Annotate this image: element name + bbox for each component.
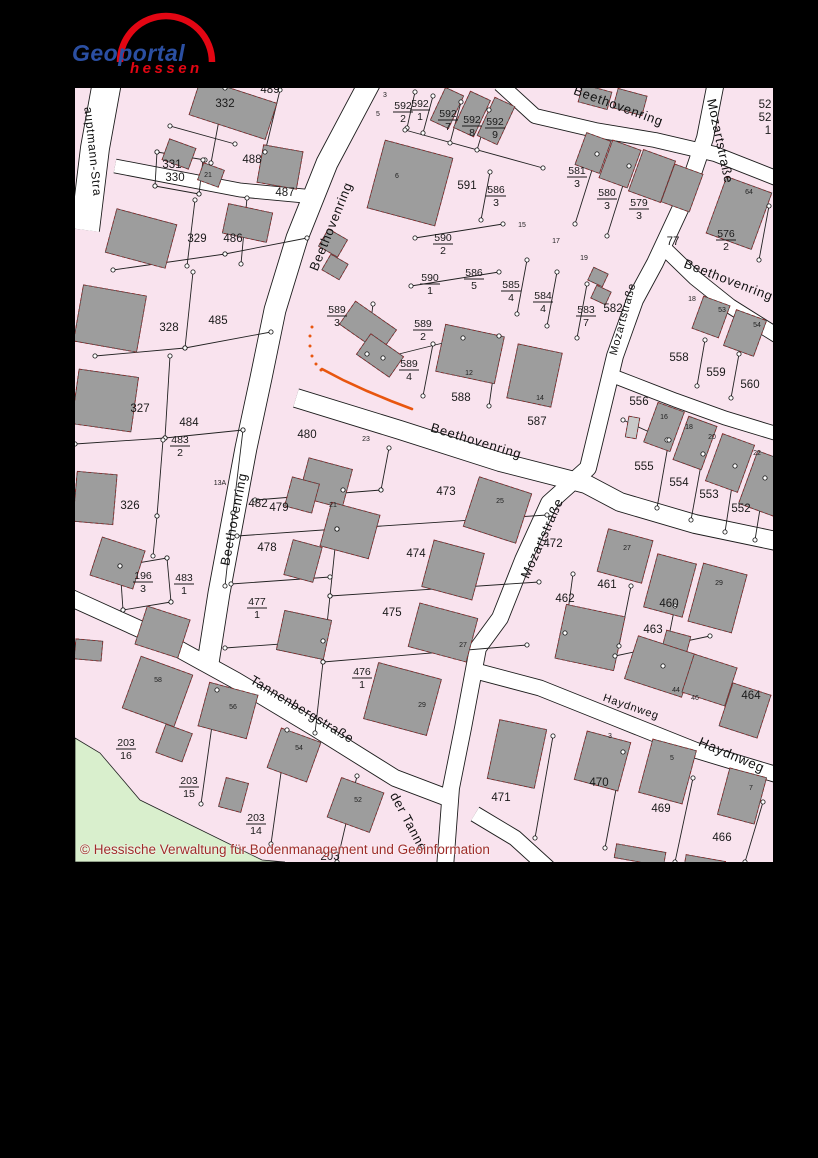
parcel-label: 553 [699,489,718,501]
fraction-numerator: 586 [465,267,483,279]
fraction-denominator: 5 [471,280,477,292]
boundary-point [621,750,625,754]
logo-text-sub: hessen [130,60,203,77]
building-number: 21 [204,172,212,179]
building-number: 7 [749,785,753,792]
parcel-label: 326 [120,500,139,512]
parcel-label: 474 [406,548,426,560]
building [75,471,117,524]
building-number: 15 [518,222,526,229]
building [555,604,625,670]
boundary-point [673,860,677,862]
fraction-denominator: 1 [427,285,433,297]
boundary-point [515,312,519,316]
building-number: 27 [459,642,467,649]
building-footprint [555,604,625,670]
boundary-point [335,527,339,531]
building-number: 18 [685,424,693,431]
fraction-numerator: 203 [247,812,265,824]
parcel-label: 473 [436,486,455,498]
building-number: 21 [329,502,337,509]
building-number: 53 [718,307,726,314]
fraction-numerator: 203 [117,737,135,749]
boundary-point [421,131,425,135]
fraction-denominator: 3 [140,583,146,595]
fraction-denominator: 3 [493,197,499,209]
parcel-label: 469 [651,803,670,815]
building-number: 13A [214,480,227,487]
boundary-point [168,124,172,128]
fraction-numerator: 592 [463,114,481,126]
parcel-label: 462 [555,593,574,605]
boundary-point [555,270,559,274]
boundary-point [223,646,227,650]
boundary-point [501,222,505,226]
boundary-point [151,554,155,558]
boundary-point [328,575,332,579]
fraction-denominator: 7 [583,317,589,329]
highlight-dot [311,326,314,329]
fraction-denominator: 3 [636,210,642,222]
building-number: 18 [688,296,696,303]
fraction-denominator: 3 [574,178,580,190]
boundary-point [215,688,219,692]
parcel-label: 327 [130,403,149,415]
parcel-label: 485 [208,315,227,327]
boundary-point [355,774,359,778]
boundary-point [617,644,621,648]
boundary-point [753,538,757,542]
boundary-point [767,204,771,208]
fraction-denominator: 3 [604,200,610,212]
parcel-label: 488 [242,154,261,166]
fraction-numerator: 590 [434,232,452,244]
boundary-point [223,584,227,588]
boundary-point [183,346,187,350]
fraction-numerator: 579 [630,197,648,209]
building-number: 44 [672,687,680,694]
building-footprint [75,639,103,661]
boundary-point [269,330,273,334]
fraction-numerator: 584 [534,290,552,302]
boundary-point [737,352,741,356]
boundary-point [497,270,501,274]
boundary-point [743,860,747,862]
parcel-label: 330 [165,172,184,184]
fraction-denominator: 1 [181,585,187,597]
boundary-point [233,142,237,146]
boundary-point [239,262,243,266]
boundary-point [667,438,671,442]
boundary-point [695,384,699,388]
parcel-label: 558 [669,352,688,364]
building-number: 19 [580,255,588,262]
boundary-point [328,594,332,598]
boundary-point [155,514,159,518]
building-number: 3 [383,92,387,99]
boundary-point [201,158,205,162]
parcel-label: 332 [215,98,234,110]
fraction-denominator: 2 [440,245,446,257]
highlight-dot [309,335,312,338]
building-number: 29 [715,580,723,587]
fraction-denominator: 4 [406,371,412,383]
building-number: 52 [354,797,362,804]
boundary-point [487,108,491,112]
building [75,639,103,661]
fraction-denominator: 1 [254,609,260,621]
boundary-point [341,488,345,492]
boundary-point [229,582,233,586]
boundary-point [321,639,325,643]
boundary-point [573,222,577,226]
boundary-point [661,664,665,668]
parcel-label: 52 [759,112,772,124]
fraction-numerator: 477 [248,596,266,608]
boundary-point [321,660,325,664]
parcel-label: 559 [706,367,725,379]
boundary-point [169,600,173,604]
boundary-point [263,150,267,154]
boundary-point [475,148,479,152]
fraction-numerator: 583 [577,304,595,316]
parcel-label: 556 [629,396,648,408]
boundary-point [488,170,492,174]
boundary-point [551,734,555,738]
boundary-point [413,90,417,94]
boundary-point [153,184,157,188]
boundary-point [191,270,195,274]
parcel-label: 486 [223,233,242,245]
parcel-label: 1 [765,125,771,137]
fraction-denominator: 2 [400,113,406,125]
fraction-numerator: 589 [414,318,432,330]
map-container[interactable]: 3324894884873313303294863284853274843264… [75,88,773,862]
boundary-point [305,236,309,240]
parcel-label: 475 [382,607,401,619]
boundary-point [93,354,97,358]
fraction-denominator: 2 [723,241,729,253]
building-number: 17 [552,238,560,245]
boundary-point [703,338,707,342]
boundary-point [525,258,529,262]
building-number: 16 [660,414,668,421]
parcel-label: 331 [162,159,181,171]
page: Geoportal hessen 33248948848733133032948… [0,0,818,1158]
fraction-numerator: 589 [328,304,346,316]
building-number: 64 [745,189,753,196]
parcel-label: 489 [260,88,279,96]
boundary-point [285,728,289,732]
fraction-numerator: 592 [439,108,457,120]
boundary-point [209,161,213,165]
building [75,285,146,352]
building-number: 54 [295,745,303,752]
boundary-point [605,234,609,238]
fraction-denominator: 9 [492,129,498,141]
boundary-point [571,572,575,576]
boundary-point [479,218,483,222]
boundary-point [701,452,705,456]
parcel-label: 560 [740,379,759,391]
boundary-point [223,88,227,90]
building-number: 27 [623,545,631,552]
building-number: 3 [608,733,612,740]
fraction-denominator: 2 [420,331,426,343]
boundary-point [691,776,695,780]
boundary-point [193,198,197,202]
building-number: 54 [753,322,761,329]
boundary-point [689,518,693,522]
building-number: 23 [362,436,370,443]
parcel-label: 479 [269,502,288,514]
cadastral-map-viewport[interactable]: 3324894884873313303294863284853274843264… [75,88,773,862]
boundary-point [381,356,385,360]
boundary-point [75,442,77,446]
boundary-point [165,556,169,560]
building-number: 25 [496,498,504,505]
fraction-numerator: 196 [134,570,152,582]
building-number: 14 [536,395,544,402]
boundary-point [595,152,599,156]
parcel-label: 482 [248,498,267,510]
copyright-text: © Hessische Verwaltung für Bodenmanageme… [80,842,490,857]
fraction-denominator: 4 [540,303,546,315]
highlight-dot [311,355,314,358]
fraction-denominator: 16 [120,750,132,762]
fraction-numerator: 483 [175,572,193,584]
parcel-label: 487 [275,187,294,199]
fraction-numerator: 592 [394,100,412,112]
fraction-numerator: 589 [400,358,418,370]
boundary-point [533,836,537,840]
boundary-point [545,324,549,328]
fraction-denominator: 2 [177,447,183,459]
boundary-point [563,631,567,635]
fraction-numerator: 590 [421,272,439,284]
boundary-point [733,464,737,468]
boundary-point [168,354,172,358]
fraction-numerator: 483 [171,434,189,446]
fraction-numerator: 581 [568,165,586,177]
boundary-point [575,336,579,340]
building-footprint [75,369,139,432]
parcel-label: 461 [597,579,616,591]
parcel-label: 328 [159,322,178,334]
boundary-point [487,404,491,408]
boundary-point [613,654,617,658]
building-number: 22 [753,450,761,457]
boundary-point [459,100,463,104]
boundary-point [371,302,375,306]
parcel-label: 554 [669,477,689,489]
parcel-label: 463 [643,624,662,636]
parcel-label: 329 [187,233,206,245]
boundary-point [763,476,767,480]
boundary-point [708,634,712,638]
boundary-point [761,800,765,804]
boundary-point [313,731,317,735]
boundary-point [729,396,733,400]
parcel-label: 470 [589,777,608,789]
parcel-label: 460 [659,598,678,610]
parcel-label: 555 [634,461,653,473]
boundary-point [448,141,452,145]
boundary-point [537,580,541,584]
fraction-denominator: 7 [445,121,451,133]
geoportal-logo[interactable]: Geoportal hessen [70,12,230,84]
parcel-label: 484 [179,417,199,429]
boundary-point [121,608,125,612]
boundary-point [241,428,245,432]
boundary-point [431,342,435,346]
building-number: 20 [708,434,716,441]
boundary-point [757,258,761,262]
boundary-point [629,584,633,588]
parcel-label: 591 [457,180,476,192]
fraction-numerator: 592 [411,98,429,110]
fraction-denominator: 3 [334,317,340,329]
boundary-point [497,334,501,338]
boundary-point [245,196,249,200]
boundary-point [197,192,201,196]
fraction-denominator: 15 [183,788,195,800]
parcel-label: 77 [667,236,680,248]
boundary-point [621,418,625,422]
building-number: 5 [376,111,380,118]
fraction-numerator: 592 [486,116,504,128]
parcel-label: 52 [759,99,772,111]
boundary-point [525,643,529,647]
parcel-label: 552 [731,503,750,515]
boundary-point [387,446,391,450]
boundary-point [403,128,407,132]
fraction-numerator: 476 [353,666,371,678]
parcel-label: 587 [527,416,546,428]
building-number: 58 [154,677,162,684]
fraction-numerator: 203 [180,775,198,787]
boundary-point [111,268,115,272]
fraction-numerator: 586 [487,184,505,196]
boundary-point [161,438,165,442]
fraction-numerator: 580 [598,187,616,199]
highlight-dot [309,345,312,348]
boundary-point [655,506,659,510]
boundary-point [365,352,369,356]
building-number: 5 [670,755,674,762]
parcel-label: 480 [297,429,316,441]
boundary-point [431,94,435,98]
building-footprint [75,471,117,524]
boundary-point [603,846,607,850]
fraction-denominator: 8 [469,127,475,139]
boundary-point [155,150,159,154]
building-number: 29 [418,702,426,709]
boundary-point [409,284,413,288]
fraction-numerator: 585 [502,279,520,291]
parcel-label: 478 [257,542,276,554]
fraction-denominator: 1 [359,679,365,691]
boundary-point [461,336,465,340]
highlight-dot [315,363,318,366]
fraction-denominator: 1 [417,111,423,123]
boundary-point [541,166,545,170]
fraction-numerator: 576 [717,228,735,240]
parcel-label: 466 [712,832,731,844]
boundary-point [723,530,727,534]
building-number: 6 [395,173,399,180]
boundary-point [118,564,122,568]
boundary-point [379,488,383,492]
fraction-denominator: 4 [508,292,514,304]
boundary-point [413,236,417,240]
fraction-denominator: 14 [250,825,262,837]
boundary-point [585,282,589,286]
boundary-point [223,252,227,256]
parcel-label: 471 [491,792,510,804]
parcel-label: 588 [451,392,470,404]
building [75,369,139,432]
building-number: 56 [229,704,237,711]
building-footprint [75,285,146,352]
building-number: 12 [465,370,473,377]
boundary-point [421,394,425,398]
parcel-label: 464 [741,690,761,702]
building-number: 46 [691,695,699,702]
boundary-point [627,164,631,168]
boundary-point [185,264,189,268]
boundary-point [199,802,203,806]
